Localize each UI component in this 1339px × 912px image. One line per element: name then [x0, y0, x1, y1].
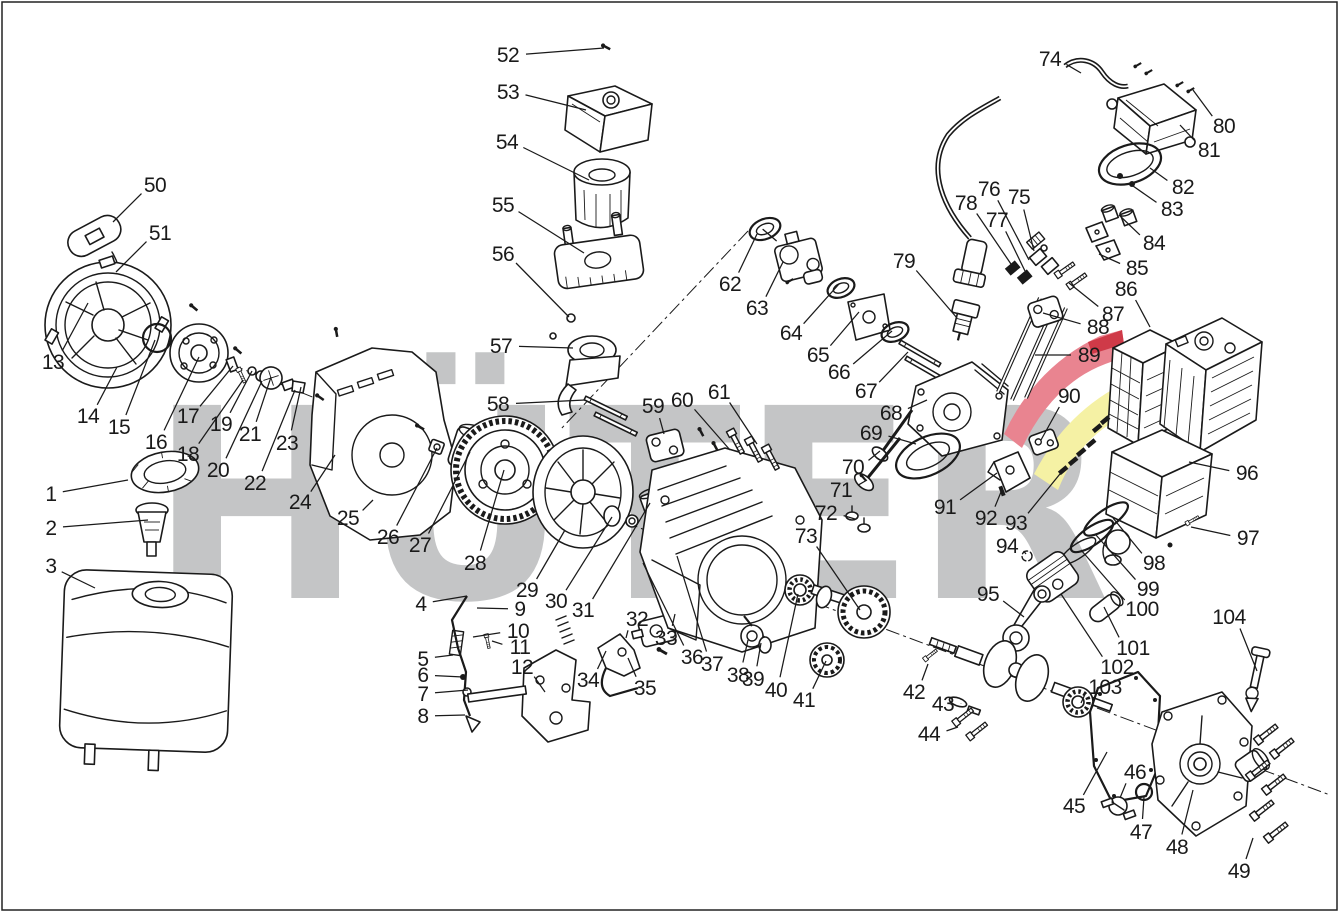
callout-number-78: 78 — [955, 192, 977, 215]
callout-number-96: 96 — [1236, 462, 1258, 485]
part-valve-cover — [1107, 84, 1196, 154]
callout-number-68: 68 — [880, 402, 902, 425]
leader-line-6 — [435, 676, 463, 677]
callout-number-91: 91 — [934, 496, 956, 519]
callout-number-35: 35 — [634, 677, 656, 700]
callout-number-92: 92 — [975, 507, 997, 530]
part-governor-shaft-104 — [1239, 646, 1270, 712]
callout-number-26: 26 — [377, 526, 399, 549]
callout-number-52: 52 — [497, 44, 519, 67]
callout-number-44: 44 — [918, 723, 941, 746]
callout-number-67: 67 — [855, 380, 877, 403]
leader-line-63 — [766, 262, 783, 297]
callout-number-28: 28 — [464, 552, 486, 575]
callout-number-30: 30 — [545, 590, 567, 613]
callout-number-100: 100 — [1125, 598, 1159, 621]
callout-number-56: 56 — [492, 243, 514, 266]
callout-number-42: 42 — [903, 681, 925, 704]
part-timing-gear — [810, 643, 844, 677]
callout-number-73: 73 — [795, 525, 817, 548]
callout-number-61: 61 — [708, 381, 730, 404]
callout-number-20: 20 — [207, 459, 229, 482]
part-oil-cap-46 — [1101, 797, 1135, 820]
leader-line-64 — [804, 284, 839, 324]
callout-number-8: 8 — [417, 705, 428, 728]
leader-line-87 — [1069, 283, 1098, 307]
callout-number-64: 64 — [780, 322, 803, 345]
callout-number-32: 32 — [626, 608, 648, 631]
callout-number-83: 83 — [1161, 198, 1183, 221]
part-fuel-tank — [58, 569, 233, 773]
callout-number-22: 22 — [244, 472, 266, 495]
part-carb-gasket-62 — [746, 214, 783, 245]
callout-number-17: 17 — [177, 405, 199, 428]
callout-number-37: 37 — [701, 653, 723, 676]
part-cylinder-block — [640, 448, 822, 652]
part-starter-pulley — [170, 324, 228, 382]
callout-number-49: 49 — [1228, 860, 1250, 883]
callout-number-53: 53 — [497, 81, 519, 104]
callout-number-58: 58 — [487, 393, 509, 416]
callout-number-1: 1 — [45, 483, 56, 506]
leader-line-46 — [1120, 783, 1126, 798]
callout-number-54: 54 — [496, 131, 519, 154]
leader-line-2 — [63, 520, 148, 527]
callout-number-65: 65 — [807, 344, 829, 367]
callout-number-4: 4 — [415, 593, 427, 616]
callout-number-90: 90 — [1058, 385, 1080, 408]
callout-number-94: 94 — [996, 535, 1019, 558]
callout-number-15: 15 — [108, 416, 130, 439]
leader-line-49 — [1246, 838, 1253, 859]
callout-number-41: 41 — [793, 689, 815, 712]
callout-number-3: 3 — [45, 555, 56, 578]
callout-number-63: 63 — [746, 297, 768, 320]
part-gasket-64 — [825, 274, 858, 301]
callout-number-33: 33 — [655, 627, 677, 650]
callout-number-82: 82 — [1172, 176, 1194, 199]
callout-number-16: 16 — [145, 431, 167, 454]
callout-number-86: 86 — [1115, 278, 1137, 301]
leader-line-50 — [113, 194, 142, 222]
callout-number-47: 47 — [1130, 821, 1152, 844]
part-cover-screw — [600, 43, 611, 51]
callout-number-59: 59 — [642, 395, 664, 418]
callout-number-72: 72 — [815, 502, 837, 525]
callout-number-62: 62 — [719, 273, 741, 296]
callout-number-55: 55 — [492, 194, 514, 217]
callout-number-2: 2 — [45, 517, 56, 540]
callout-number-97: 97 — [1237, 527, 1259, 550]
leader-line-83 — [1133, 186, 1157, 202]
part-main-bearing — [785, 575, 815, 605]
leader-line-74 — [1066, 64, 1081, 73]
callout-number-36: 36 — [681, 646, 703, 669]
leader-line-86 — [1136, 300, 1150, 327]
callout-number-29: 29 — [516, 579, 538, 602]
part-air-filter-cover — [565, 86, 652, 152]
part-nut-56 — [567, 314, 575, 322]
callout-number-14: 14 — [77, 405, 100, 428]
exploded-parts-diagram: HÜTER — [0, 0, 1339, 912]
callout-number-39: 39 — [742, 668, 764, 691]
callout-number-88: 88 — [1087, 316, 1109, 339]
callout-number-71: 71 — [830, 479, 852, 502]
callout-number-79: 79 — [893, 250, 915, 273]
callout-number-48: 48 — [1166, 836, 1188, 859]
callout-number-76: 76 — [978, 178, 1000, 201]
callout-number-93: 93 — [1005, 512, 1027, 535]
part-air-box — [1103, 430, 1212, 565]
callout-number-25: 25 — [337, 507, 359, 530]
part-muffler-body — [1160, 318, 1262, 452]
callout-number-23: 23 — [276, 432, 298, 455]
part-breather-tube — [1065, 60, 1128, 86]
callout-number-34: 34 — [577, 669, 600, 692]
callout-number-89: 89 — [1078, 344, 1100, 367]
diagram-canvas: HÜTER — [0, 0, 1339, 912]
leader-line-57 — [519, 346, 573, 348]
callout-number-77: 77 — [986, 209, 1008, 232]
part-nut-56b — [550, 333, 556, 339]
part-fan — [533, 436, 633, 548]
callout-number-18: 18 — [177, 443, 199, 466]
callout-number-43: 43 — [932, 693, 954, 716]
callout-number-13: 13 — [42, 351, 64, 374]
callout-number-46: 46 — [1124, 761, 1146, 784]
leader-line-55 — [519, 212, 585, 253]
callout-number-51: 51 — [149, 222, 171, 245]
leader-line-79 — [916, 271, 957, 319]
callout-number-40: 40 — [765, 679, 787, 702]
leader-line-52 — [526, 48, 604, 54]
part-reed-plates — [1086, 222, 1120, 260]
callout-number-60: 60 — [671, 389, 693, 412]
callout-number-69: 69 — [860, 422, 882, 445]
leader-line-9 — [477, 608, 508, 609]
callout-number-66: 66 — [828, 361, 850, 384]
callout-number-57: 57 — [490, 335, 512, 358]
callout-number-50: 50 — [144, 174, 166, 197]
callout-number-98: 98 — [1143, 552, 1165, 575]
callout-number-21: 21 — [239, 423, 261, 446]
callout-number-45: 45 — [1063, 795, 1085, 818]
callout-number-70: 70 — [842, 456, 864, 479]
callout-number-7: 7 — [417, 683, 428, 706]
callout-number-24: 24 — [289, 491, 312, 514]
callout-number-31: 31 — [572, 599, 594, 622]
callout-number-104: 104 — [1212, 606, 1246, 629]
part-air-filter-element — [574, 159, 630, 228]
callout-number-12: 12 — [511, 656, 533, 679]
callout-number-74: 74 — [1039, 48, 1062, 71]
leader-line-97 — [1191, 527, 1230, 536]
callout-number-75: 75 — [1008, 186, 1030, 209]
callout-number-85: 85 — [1126, 257, 1148, 280]
part-washer-30 — [604, 506, 620, 526]
callout-number-103: 103 — [1088, 676, 1122, 699]
leader-line-1 — [63, 480, 128, 492]
callout-number-27: 27 — [409, 534, 431, 557]
leader-line-8 — [435, 715, 465, 716]
callout-number-19: 19 — [210, 413, 232, 436]
callout-number-81: 81 — [1198, 139, 1220, 162]
leader-line-42 — [922, 664, 928, 680]
callout-number-95: 95 — [977, 583, 999, 606]
leader-line-44 — [947, 727, 959, 731]
callout-number-80: 80 — [1213, 115, 1235, 138]
leader-line-62 — [739, 234, 757, 273]
part-cover-bolts — [1246, 723, 1296, 843]
callout-number-84: 84 — [1143, 232, 1166, 255]
